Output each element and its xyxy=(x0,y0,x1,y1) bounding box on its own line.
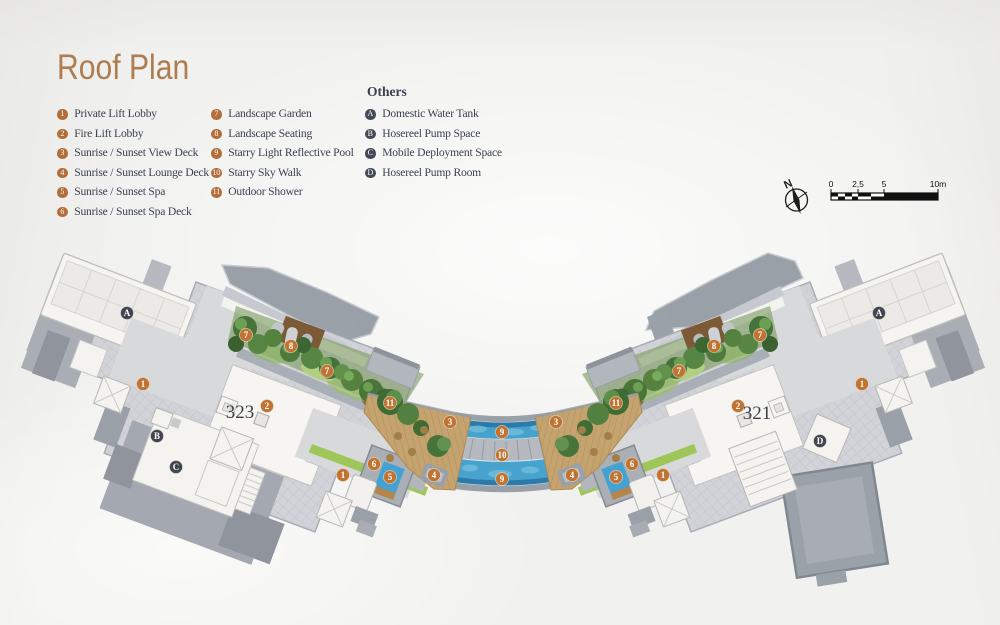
svg-text:C: C xyxy=(173,462,180,472)
svg-text:8: 8 xyxy=(289,341,294,351)
svg-text:B: B xyxy=(154,431,160,441)
svg-text:8: 8 xyxy=(712,341,717,351)
svg-text:323: 323 xyxy=(226,402,255,423)
svg-text:7: 7 xyxy=(677,366,682,376)
svg-text:6: 6 xyxy=(630,459,635,469)
svg-text:10: 10 xyxy=(498,450,508,460)
svg-text:7: 7 xyxy=(325,366,330,376)
svg-text:1: 1 xyxy=(141,379,146,389)
svg-text:2: 2 xyxy=(736,401,741,411)
svg-text:1: 1 xyxy=(860,379,865,389)
svg-text:4: 4 xyxy=(432,470,437,480)
svg-text:9: 9 xyxy=(500,474,505,484)
svg-text:5: 5 xyxy=(614,472,619,482)
svg-text:3: 3 xyxy=(554,417,559,427)
svg-text:11: 11 xyxy=(612,398,621,408)
svg-text:5: 5 xyxy=(388,472,393,482)
svg-text:9: 9 xyxy=(500,427,505,437)
svg-text:5: 5 xyxy=(882,179,887,189)
svg-text:A: A xyxy=(876,308,883,318)
svg-text:D: D xyxy=(817,436,824,446)
svg-text:10m: 10m xyxy=(930,179,947,189)
svg-text:4: 4 xyxy=(570,470,575,480)
svg-text:11: 11 xyxy=(386,398,395,408)
svg-text:0: 0 xyxy=(829,179,834,189)
svg-text:1: 1 xyxy=(661,470,666,480)
svg-text:321: 321 xyxy=(743,403,772,424)
svg-text:A: A xyxy=(124,308,131,318)
svg-text:1: 1 xyxy=(341,470,346,480)
svg-text:2: 2 xyxy=(265,401,270,411)
svg-text:3: 3 xyxy=(448,417,453,427)
svg-text:7: 7 xyxy=(244,330,249,340)
svg-text:7: 7 xyxy=(758,330,763,340)
svg-text:6: 6 xyxy=(372,459,377,469)
svg-text:2,5: 2,5 xyxy=(852,179,864,189)
